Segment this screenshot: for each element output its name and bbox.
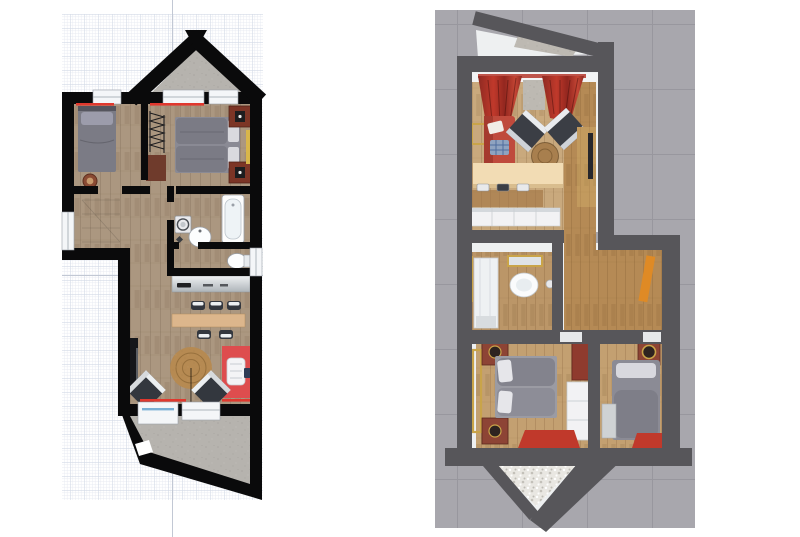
tv-cabinet[interactable]	[577, 127, 596, 207]
wc-2d	[228, 254, 251, 269]
pillow	[616, 363, 656, 378]
brown-rug[interactable]	[146, 155, 166, 181]
bar-table[interactable]	[172, 314, 245, 327]
wardrobe-strip[interactable]	[246, 130, 250, 164]
nightstand-top[interactable]	[229, 106, 251, 127]
nightstand-bottom[interactable]	[482, 418, 508, 444]
white-armchair[interactable]	[227, 358, 245, 385]
dining-chairs[interactable]	[477, 184, 529, 191]
nightstand-bottom[interactable]	[229, 162, 251, 183]
headboard	[78, 106, 116, 111]
pillow	[497, 359, 513, 382]
kitchen-2d	[172, 276, 250, 292]
toilet[interactable]	[228, 254, 247, 269]
tv-screen	[588, 133, 593, 179]
plan-2d-canvas[interactable]	[0, 0, 400, 537]
double-bed[interactable]	[495, 356, 557, 418]
washing-machine[interactable]	[175, 216, 191, 233]
plaid-pillow	[490, 140, 509, 155]
remote-tray[interactable]	[244, 368, 251, 378]
pillow	[81, 112, 113, 125]
panel-3d-plan[interactable]	[400, 0, 800, 537]
plan-3d-canvas[interactable]	[400, 0, 800, 537]
bedroom-divider-wall-3d	[588, 344, 600, 448]
bedroom-double-door-gap[interactable]	[560, 332, 582, 342]
shower-cabin[interactable]	[474, 258, 498, 328]
washbasin[interactable]	[510, 273, 538, 297]
terrace-window	[182, 402, 220, 420]
bedroom-divider-wall	[141, 92, 148, 180]
left-wall-window	[62, 212, 74, 250]
bay-window-right	[209, 90, 238, 104]
red-rug[interactable]	[632, 433, 666, 448]
gold-mirror[interactable]	[508, 256, 542, 266]
wc-window	[250, 248, 262, 276]
floor-plan-composite	[0, 0, 800, 537]
bar-stools-row[interactable]	[191, 301, 241, 310]
white-cabinet-row[interactable]	[470, 208, 560, 226]
bedroom-single-door-gap[interactable]	[643, 332, 661, 342]
pillow	[497, 390, 513, 413]
kitchen-sink	[177, 283, 191, 288]
terrace-door	[138, 402, 178, 424]
panel-2d-plan[interactable]	[0, 0, 400, 537]
single-bed[interactable]	[612, 360, 660, 440]
bay-window-left	[163, 90, 204, 104]
bedroom-left-window	[93, 90, 121, 104]
gray-desk[interactable]	[602, 404, 616, 438]
red-rug[interactable]	[518, 430, 580, 448]
